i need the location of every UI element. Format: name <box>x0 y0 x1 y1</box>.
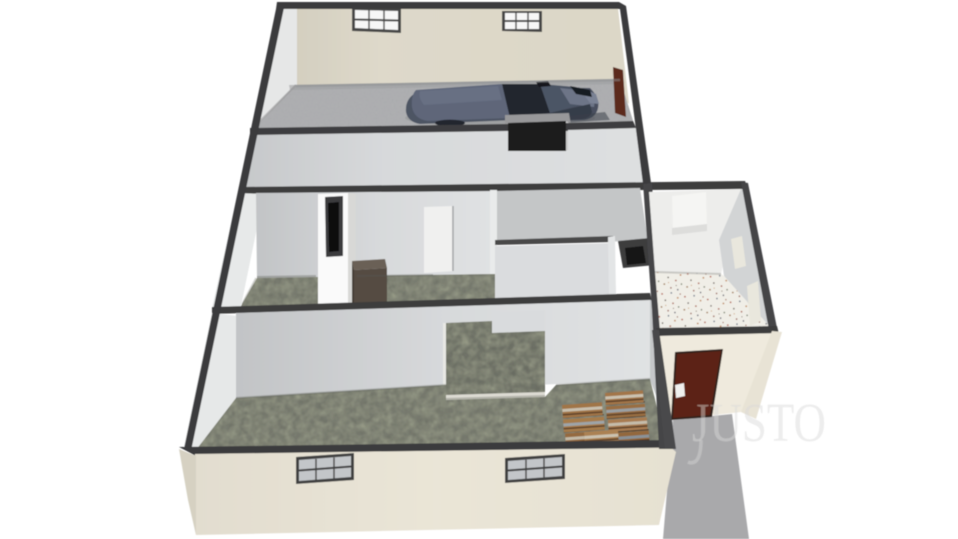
svg-text:JUSTO: JUSTO <box>692 392 826 453</box>
